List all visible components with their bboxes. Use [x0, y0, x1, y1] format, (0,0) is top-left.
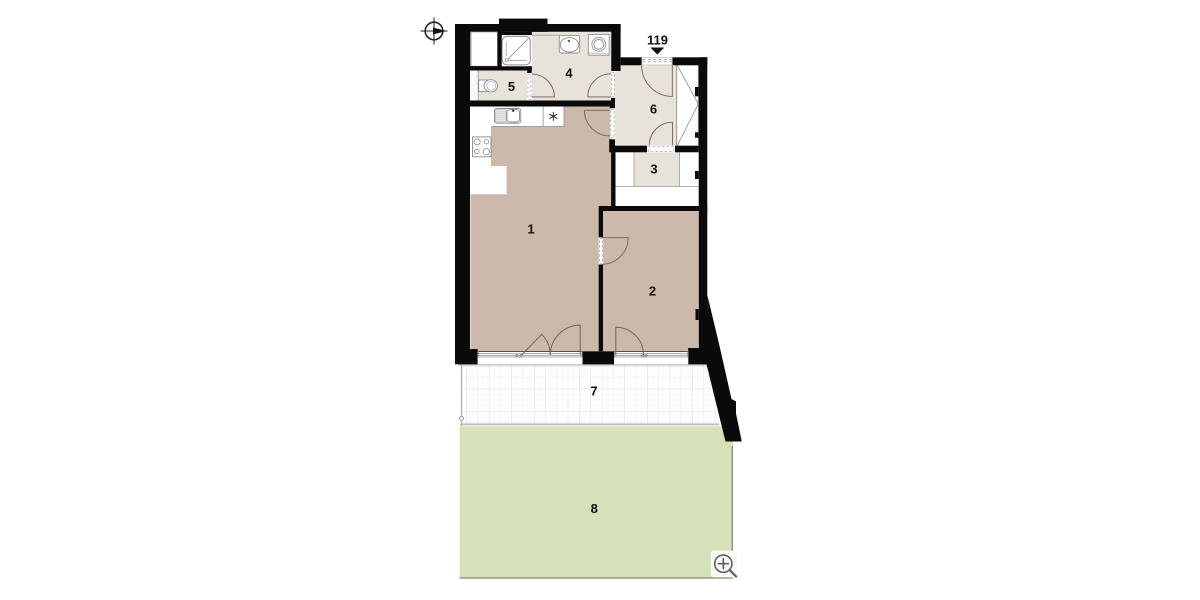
svg-text:5: 5: [508, 79, 515, 94]
svg-text:8: 8: [591, 501, 598, 516]
svg-text:4: 4: [565, 66, 573, 81]
svg-text:119: 119: [647, 33, 668, 48]
svg-text:6: 6: [650, 102, 657, 117]
svg-text:2: 2: [649, 284, 656, 299]
svg-text:3: 3: [650, 162, 657, 177]
svg-text:7: 7: [590, 384, 597, 399]
svg-text:1: 1: [527, 222, 534, 237]
